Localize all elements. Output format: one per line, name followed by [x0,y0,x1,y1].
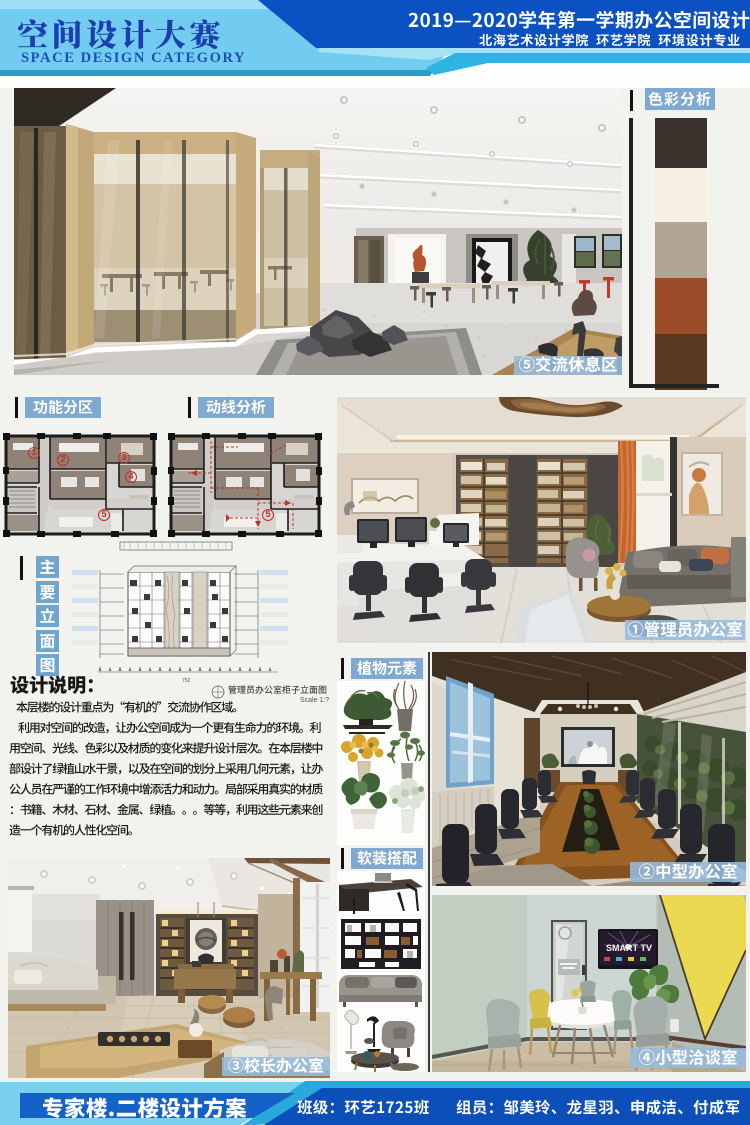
svg-text:752: 752 [182,678,191,684]
svg-text:SMART TV: SMART TV [606,943,652,953]
